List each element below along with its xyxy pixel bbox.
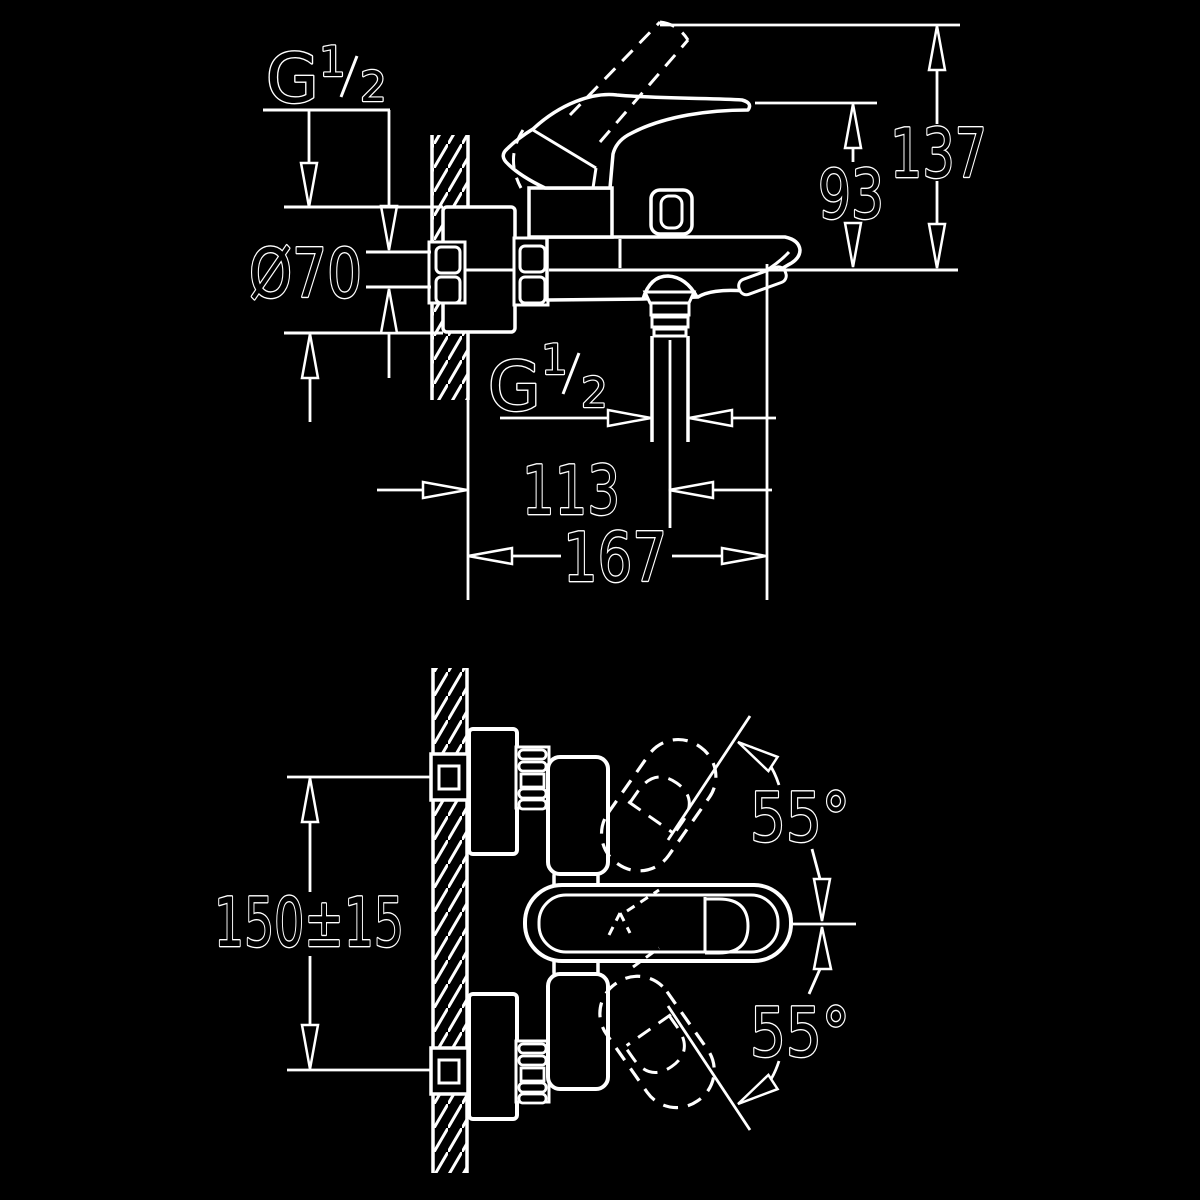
total-height-label: 137 [890,115,987,194]
technical-drawing: G 1 2 Ø70 93 [0,0,1200,1200]
union-front-top [516,747,549,809]
inlet-fitting [429,242,465,303]
outlet-thread-denominator: 2 [581,368,608,417]
escutcheon-front-bottom [469,994,517,1119]
swing-centerline-arrows [791,849,856,994]
diverter-button [651,190,692,234]
cartridge-housing [529,188,612,237]
dim-swing-lower-55: 55° [668,994,850,1130]
dim-flange-diameter: Ø70 [249,207,443,422]
wall-section-side [432,135,468,600]
front-view: 150±15 55° 55° [214,668,856,1173]
flange-diameter-label: Ø70 [249,235,362,314]
body-front-lower [548,974,608,1089]
outlet-thread-numerator: 1 [541,335,568,384]
lever-handle-side [503,95,749,188]
dim-pipe-spacing-150: 150±15 [214,777,432,1070]
wall-section-front [433,668,467,1173]
dim-swing-upper-55: 55° [668,716,850,858]
pipe-spacing-label: 150±15 [214,884,404,963]
union-front-bottom [516,1041,549,1103]
inlet-thread-denominator: 2 [360,62,387,111]
swing-lower-label: 55° [750,994,850,1073]
union-nut-side [514,238,548,305]
swing-upper-label: 55° [750,779,850,858]
outlet-thread-letter: G [488,348,541,427]
projection-label: 167 [563,519,667,598]
wall-hatch-front [433,668,467,1173]
dim-outlet-thread: G 1 2 [488,335,776,427]
dim-inlet-thread: G 1 2 [263,37,397,250]
drawing-canvas: G 1 2 Ø70 93 [0,0,1200,1200]
handle-front [525,885,791,967]
body-front-upper [548,757,608,874]
side-view: G 1 2 Ø70 93 [249,22,987,600]
inlet-thread-numerator: 1 [319,37,346,86]
escutcheon-front-top [469,729,517,854]
inlet-thread-letter: G [266,40,319,119]
